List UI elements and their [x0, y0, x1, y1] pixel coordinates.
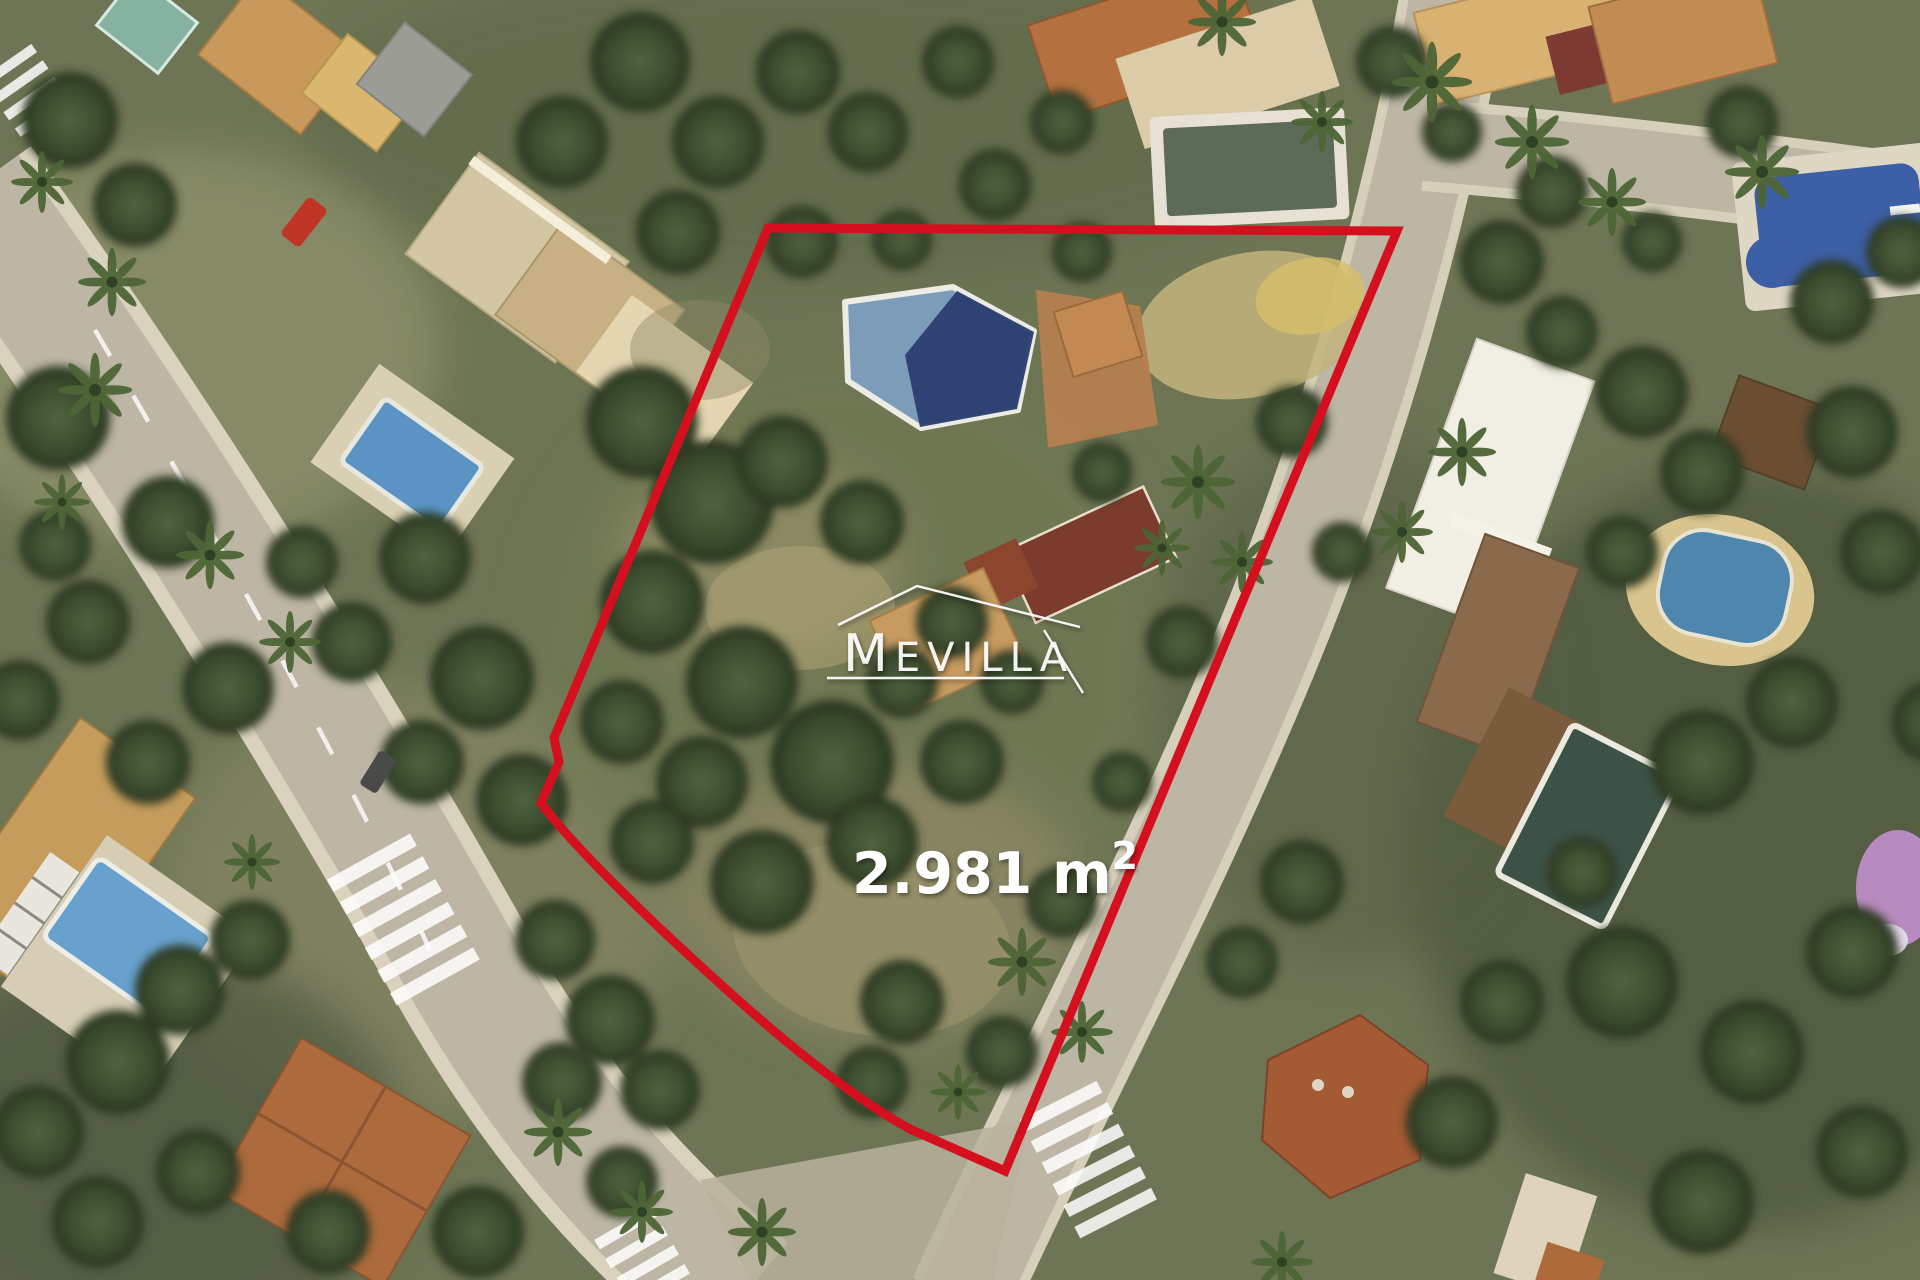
palm-tree: [176, 521, 244, 589]
palm-tree: [1291, 91, 1353, 153]
palm-tree: [988, 928, 1056, 996]
palm-tree: [1161, 445, 1235, 519]
palm-tree: [611, 1181, 673, 1243]
palm-tree: [1578, 168, 1646, 236]
aerial-photo-stage: MEVILLA 2.981 m2: [0, 0, 1920, 1280]
palm-tree: [1428, 418, 1496, 486]
northeast-pool-corner: [1746, 236, 1798, 288]
palm-tree: [1392, 42, 1473, 123]
palm-tree: [930, 1064, 986, 1120]
palm-tree: [58, 353, 132, 427]
palm-tree: [259, 611, 321, 673]
palm-tree: [1134, 520, 1190, 576]
palm-tree: [524, 1098, 592, 1166]
roof-vent: [1342, 1086, 1354, 1098]
palm-tree: [1371, 501, 1433, 563]
palm-tree: [34, 474, 90, 530]
palm-tree: [1725, 135, 1799, 209]
palm-tree: [1495, 105, 1569, 179]
palm-tree: [78, 248, 146, 316]
palm-tree: [11, 151, 73, 213]
aerial-photo: MEVILLA 2.981 m2: [0, 0, 1920, 1280]
palm-tree: [224, 834, 280, 890]
palm-tree: [728, 1198, 796, 1266]
area-label: 2.981 m2: [852, 834, 1138, 907]
roof-vent: [1312, 1079, 1324, 1091]
